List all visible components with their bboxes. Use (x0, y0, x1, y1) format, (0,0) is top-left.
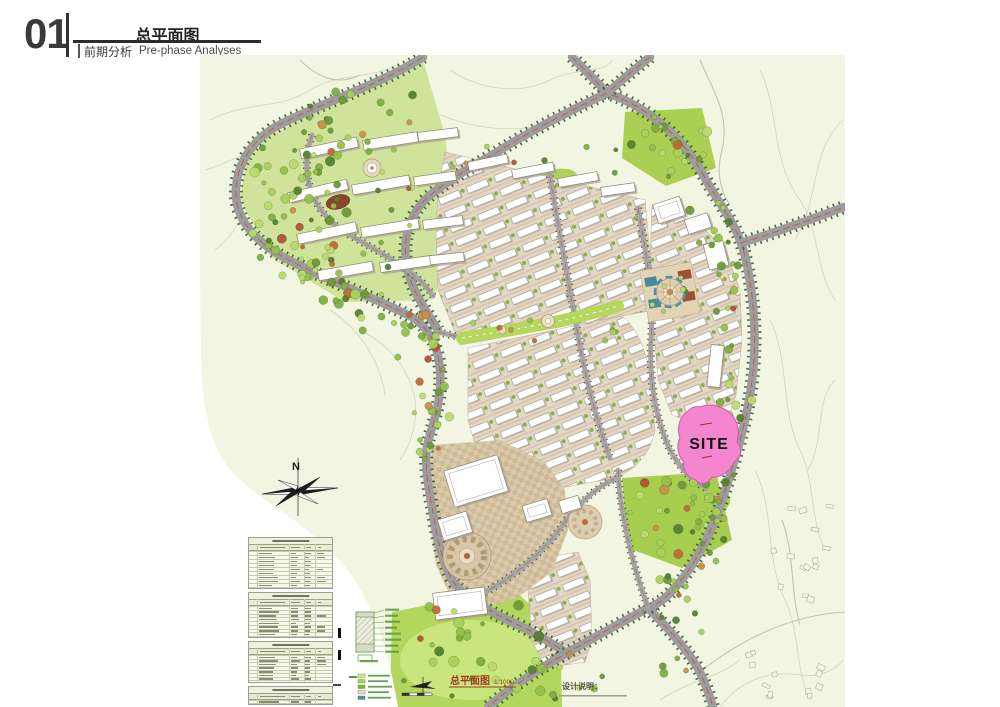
plan-caption-scale: 1:1000 (494, 679, 514, 686)
east-circular-plaza (640, 262, 700, 322)
plan-caption-title: 总平面图 (450, 674, 490, 687)
site-label: SITE (689, 436, 729, 453)
masterplan-sheet: 01 总平面图 前期分析 Pre-phase Analyses (0, 0, 1000, 707)
design-notes-text-placeholder (559, 695, 627, 697)
compass-north-label: N (292, 461, 300, 473)
map-legend (349, 674, 392, 700)
masterplan-map: SITE N 总平面图 1:1000 (0, 0, 1000, 707)
scale-bar (402, 693, 432, 696)
design-notes-heading: 设计说明： (562, 681, 602, 691)
